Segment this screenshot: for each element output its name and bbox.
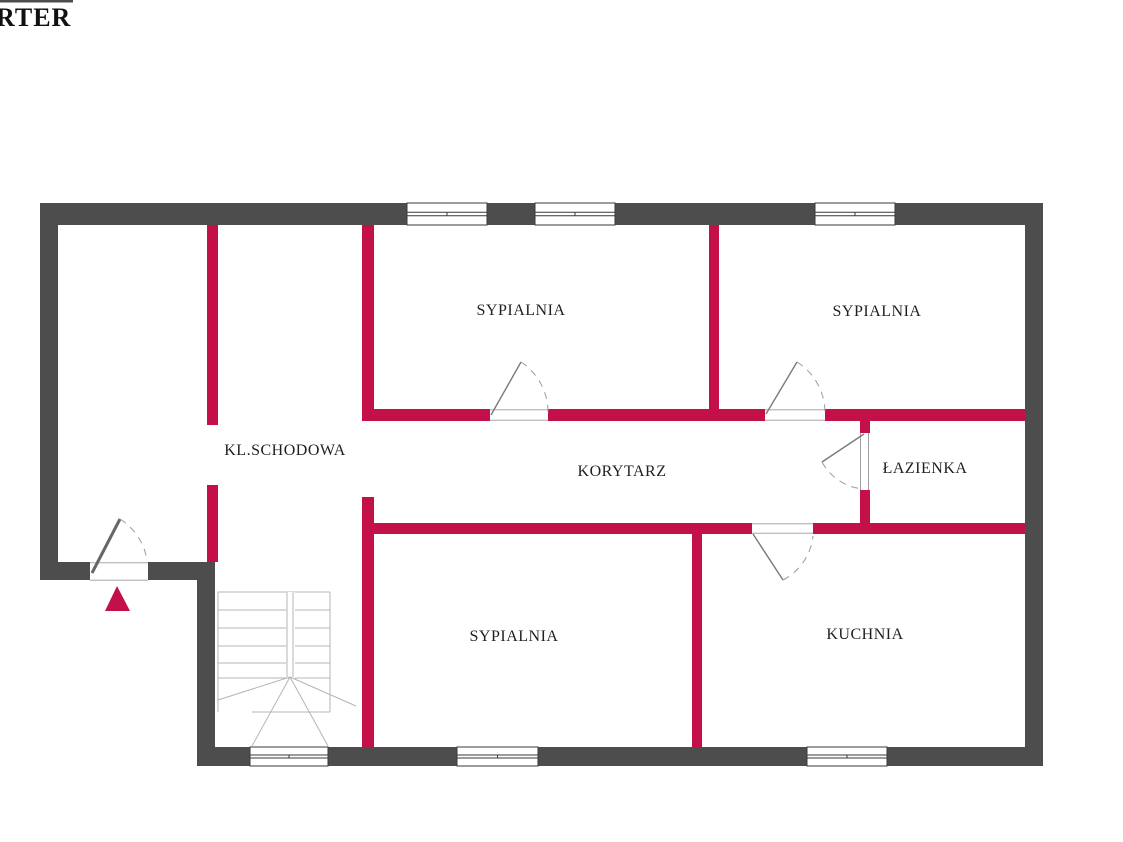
door-bedroom-mid-leaf xyxy=(491,362,521,415)
door-bedroom-right-swing-arc xyxy=(797,362,825,413)
stair-wall-right-lower xyxy=(362,497,374,747)
door-bathroom-leaf xyxy=(822,434,864,462)
stair-wall-right-upper xyxy=(362,225,374,421)
door-kitchen-swing-arc xyxy=(783,536,813,580)
door-entrance-swing-arc xyxy=(120,519,147,560)
floor-title: RTER xyxy=(0,4,71,33)
room-label-sypialnia-top-middle: SYPIALNIA xyxy=(477,302,566,320)
corridor-top-wall-2 xyxy=(548,409,765,421)
bathroom-wall-lower xyxy=(860,490,870,523)
corridor-bottom-wall-2 xyxy=(813,523,1025,534)
bedroom-divider-top xyxy=(709,225,719,421)
door-gap-bedroom-mid xyxy=(490,409,548,421)
room-label-kl-schodowa: KL.SCHODOWA xyxy=(224,442,346,460)
outer-wall-left xyxy=(40,203,58,580)
outer-wall-lower-left xyxy=(197,580,215,747)
bedroom-kitchen-divider xyxy=(692,534,702,747)
room-label-korytarz: KORYTARZ xyxy=(578,463,667,481)
door-bathroom-swing-arc xyxy=(822,462,864,489)
bathroom-wall-upper xyxy=(860,421,870,433)
stairs-winder-line xyxy=(290,677,356,706)
door-gap-kitchen xyxy=(752,523,813,534)
door-gap-bedroom-right xyxy=(765,409,825,421)
corridor-top-wall-3 xyxy=(825,409,1025,421)
stair-wall-left-upper xyxy=(207,225,218,425)
door-gap-entrance xyxy=(90,562,148,581)
room-label-lazienka: ŁAZIENKA xyxy=(883,460,968,478)
corridor-top-wall-1 xyxy=(362,409,490,421)
entrance-arrow-icon xyxy=(105,586,130,611)
floorplan-canvas: RTER KL.SCHODOWASYPIALNIASYPIALNIAKORYTA… xyxy=(0,0,1123,842)
room-label-kuchnia: KUCHNIA xyxy=(826,626,903,644)
room-label-sypialnia-top-right: SYPIALNIA xyxy=(833,303,922,321)
door-bedroom-right-leaf xyxy=(766,362,797,414)
corridor-bottom-wall-1 xyxy=(362,523,752,534)
outer-wall-right xyxy=(1025,203,1043,766)
door-bedroom-mid-swing-arc xyxy=(521,362,548,413)
stair-wall-left-lower xyxy=(207,485,218,562)
room-label-sypialnia-bottom: SYPIALNIA xyxy=(470,628,559,646)
floorplan-svg xyxy=(0,0,1123,842)
door-kitchen-leaf xyxy=(753,534,783,580)
